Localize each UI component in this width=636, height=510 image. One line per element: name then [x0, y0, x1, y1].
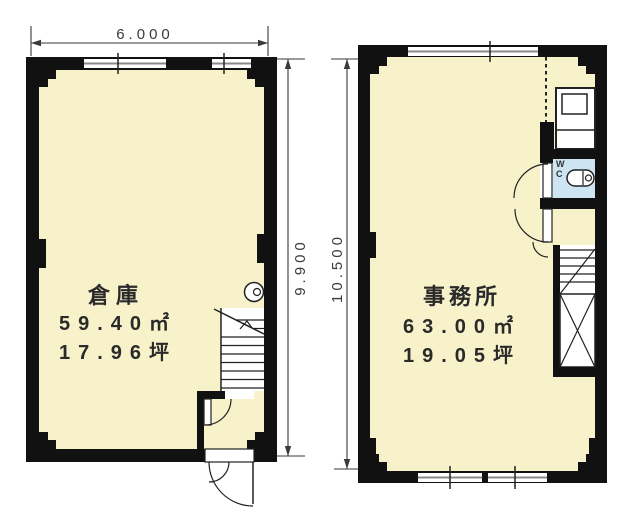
floor-plan-canvas: 6.000 9.900 10.500 倉庫 59.40㎡ 17.96坪 事務所 … — [0, 0, 636, 510]
right-height-dimension-label: 10.500 — [329, 213, 345, 323]
left-height-dimension-label: 9.900 — [292, 217, 308, 317]
door-leaf — [543, 209, 552, 242]
right-room-area-tsubo: 19.05坪 — [352, 339, 572, 368]
left-room-name: 倉庫 — [36, 278, 196, 310]
left-room-area-tsubo: 17.96坪 — [8, 336, 228, 365]
doorway-opening — [225, 391, 254, 399]
kitchenette — [556, 88, 595, 149]
right-plan — [358, 41, 607, 489]
floor-plan-drawing — [0, 0, 636, 510]
door-leaf — [204, 399, 211, 425]
door-arc — [209, 462, 253, 506]
right-room-area-m2: 63.00㎡ — [352, 310, 572, 339]
entrance-opening — [205, 449, 254, 462]
right-room-name: 事務所 — [382, 279, 542, 311]
left-entrance-door — [205, 449, 254, 506]
left-room-area-m2: 59.40㎡ — [8, 307, 228, 336]
kitchen-sink — [562, 94, 587, 114]
wc-label: WC — [556, 160, 568, 180]
door-leaf — [543, 163, 552, 198]
partition-stub-wall — [540, 122, 554, 150]
toilet — [567, 170, 594, 186]
width-dimension-label: 6.000 — [85, 26, 205, 43]
wall-basin-fixture — [245, 283, 264, 302]
